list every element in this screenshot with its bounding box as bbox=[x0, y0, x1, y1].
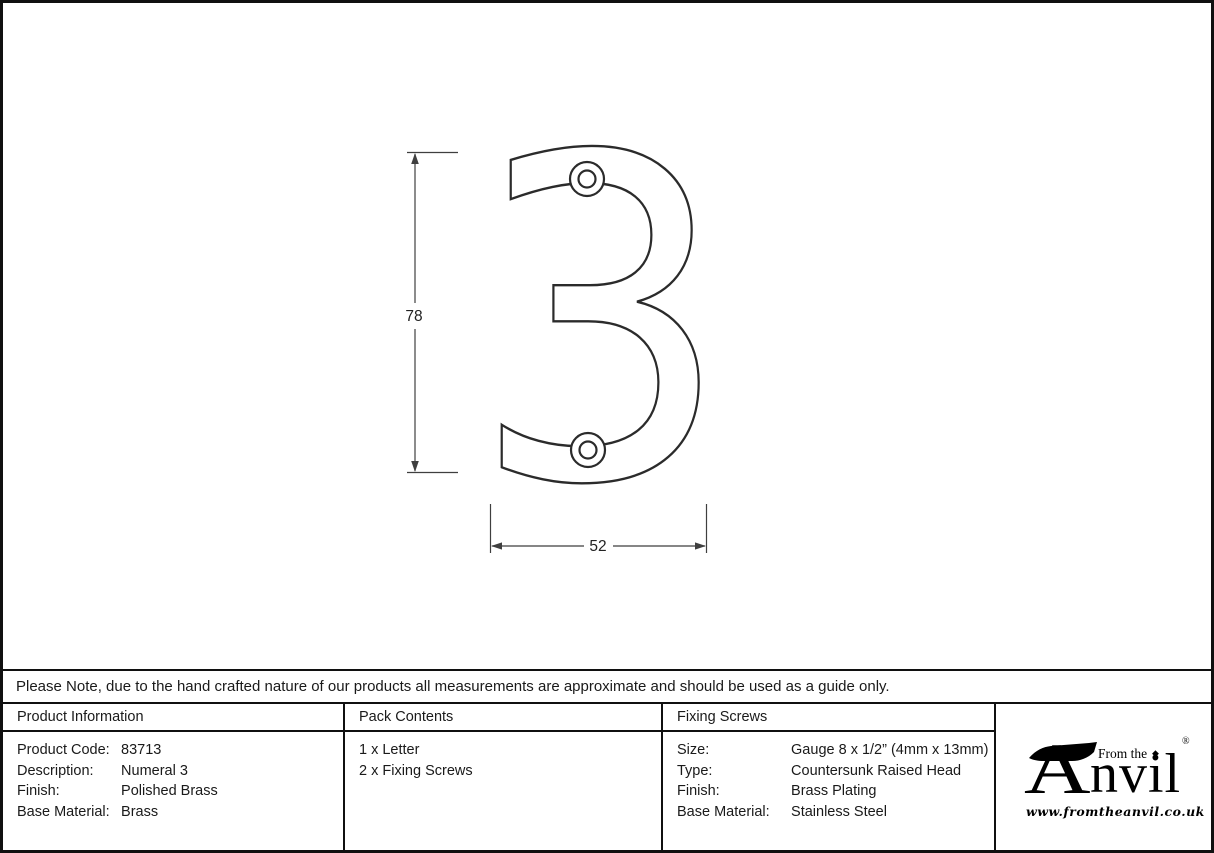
pack-contents-item: 1 x Letter bbox=[359, 740, 655, 761]
table-row: Base Material: Stainless Steel bbox=[677, 802, 988, 823]
measurement-note-text: Please Note, due to the hand crafted nat… bbox=[16, 678, 890, 695]
pack-contents-header: Pack Contents bbox=[345, 704, 661, 732]
screw-hole-bottom bbox=[571, 433, 605, 467]
row-value: Brass Plating bbox=[791, 783, 876, 799]
row-label: Finish: bbox=[17, 781, 117, 802]
row-value: Countersunk Raised Head bbox=[791, 763, 961, 779]
spec-table: Product Information Product Code: 83713 … bbox=[3, 704, 1211, 850]
row-value: Numeral 3 bbox=[121, 763, 188, 779]
product-info-column: Product Information Product Code: 83713 … bbox=[3, 704, 345, 850]
row-value: Gauge 8 x 1/2” (4mm x 13mm) bbox=[791, 742, 988, 758]
table-row: Base Material: Brass bbox=[17, 802, 337, 823]
height-dimension-label: 78 bbox=[405, 308, 422, 325]
table-row: Finish: Polished Brass bbox=[17, 781, 337, 802]
row-label: Type: bbox=[677, 761, 787, 782]
product-info-header: Product Information bbox=[3, 704, 343, 732]
brand-logo-cell: A From the ◆ nvil ® www.fromtheanvil.co.… bbox=[996, 704, 1211, 850]
row-label: Description: bbox=[17, 761, 117, 782]
numeral-glyph: 3 bbox=[470, 140, 725, 570]
table-row: Description: Numeral 3 bbox=[17, 761, 337, 782]
registered-trademark-icon: ® bbox=[1182, 736, 1190, 747]
height-dimension: 78 bbox=[405, 153, 458, 473]
table-row: Type: Countersunk Raised Head bbox=[677, 761, 988, 782]
brand-website-url: www.fromtheanvil.co.uk bbox=[1026, 804, 1188, 819]
row-value: Brass bbox=[121, 804, 158, 820]
fixing-screws-header: Fixing Screws bbox=[663, 704, 994, 732]
table-row: Finish: Brass Plating bbox=[677, 781, 988, 802]
fixing-screws-column: Fixing Screws Size: Gauge 8 x 1/2” (4mm … bbox=[663, 704, 996, 850]
row-value: 83713 bbox=[121, 742, 161, 758]
row-label: Product Code: bbox=[17, 740, 117, 761]
numeral-technical-drawing: 3 78 52 bbox=[385, 140, 725, 570]
screw-hole-top bbox=[570, 162, 604, 196]
width-dimension-label: 52 bbox=[589, 538, 606, 555]
table-row: Product Code: 83713 bbox=[17, 740, 337, 761]
row-value: Polished Brass bbox=[121, 783, 218, 799]
pack-contents-item: 2 x Fixing Screws bbox=[359, 761, 655, 782]
anvil-icon bbox=[1029, 742, 1097, 766]
brand-wordmark: nvil bbox=[1090, 746, 1181, 802]
numeral-outline: 3 bbox=[470, 140, 725, 570]
measurement-note-bar: Please Note, due to the hand crafted nat… bbox=[3, 669, 1211, 704]
row-label: Base Material: bbox=[677, 802, 787, 823]
row-label: Size: bbox=[677, 740, 787, 761]
pack-contents-column: Pack Contents 1 x Letter 2 x Fixing Scre… bbox=[345, 704, 663, 850]
row-label: Finish: bbox=[677, 781, 787, 802]
row-label: Base Material: bbox=[17, 802, 117, 823]
table-row: Size: Gauge 8 x 1/2” (4mm x 13mm) bbox=[677, 740, 988, 761]
row-value: Stainless Steel bbox=[791, 804, 887, 820]
